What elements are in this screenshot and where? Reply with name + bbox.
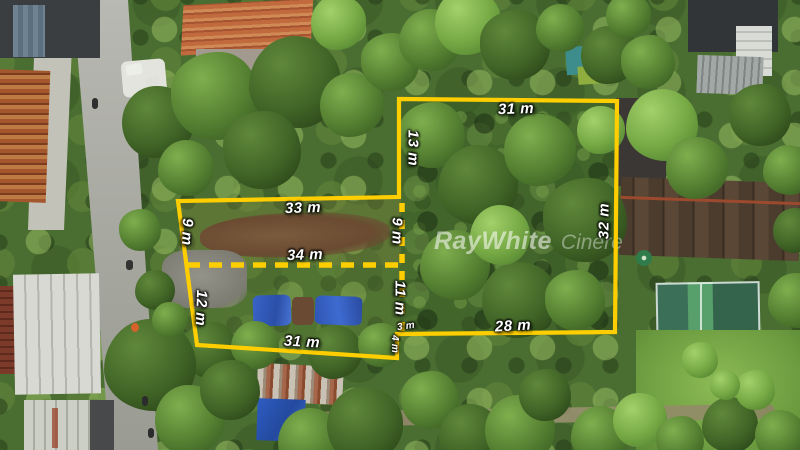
measurement-step-vertical: 4 m — [389, 335, 399, 353]
measurement-right-parcel-bottom: 28 m — [495, 318, 532, 335]
measurement-left-parcel-right-lower: 11 m — [393, 280, 408, 315]
measurement-right-parcel-left: 13 m — [406, 130, 421, 166]
measurement-left-parcel-bottom: 31 m — [284, 334, 321, 351]
measurement-left-parcel-left-upper: 9 m — [179, 218, 195, 246]
measurement-right-parcel-top: 31 m — [498, 101, 535, 117]
measurement-left-parcel-left-lower: 12 m — [193, 290, 209, 327]
measurement-left-parcel-right-upper: 9 m — [390, 217, 405, 244]
measurement-left-parcel-middle: 34 m — [287, 247, 324, 263]
measurement-left-parcel-top: 33 m — [285, 200, 322, 216]
measurement-right-parcel-right: 32 m — [597, 203, 612, 239]
aerial-land-listing-photo: 31 m 13 m 32 m 28 m 3 m 4 m 33 m 9 m 34 … — [0, 0, 800, 450]
